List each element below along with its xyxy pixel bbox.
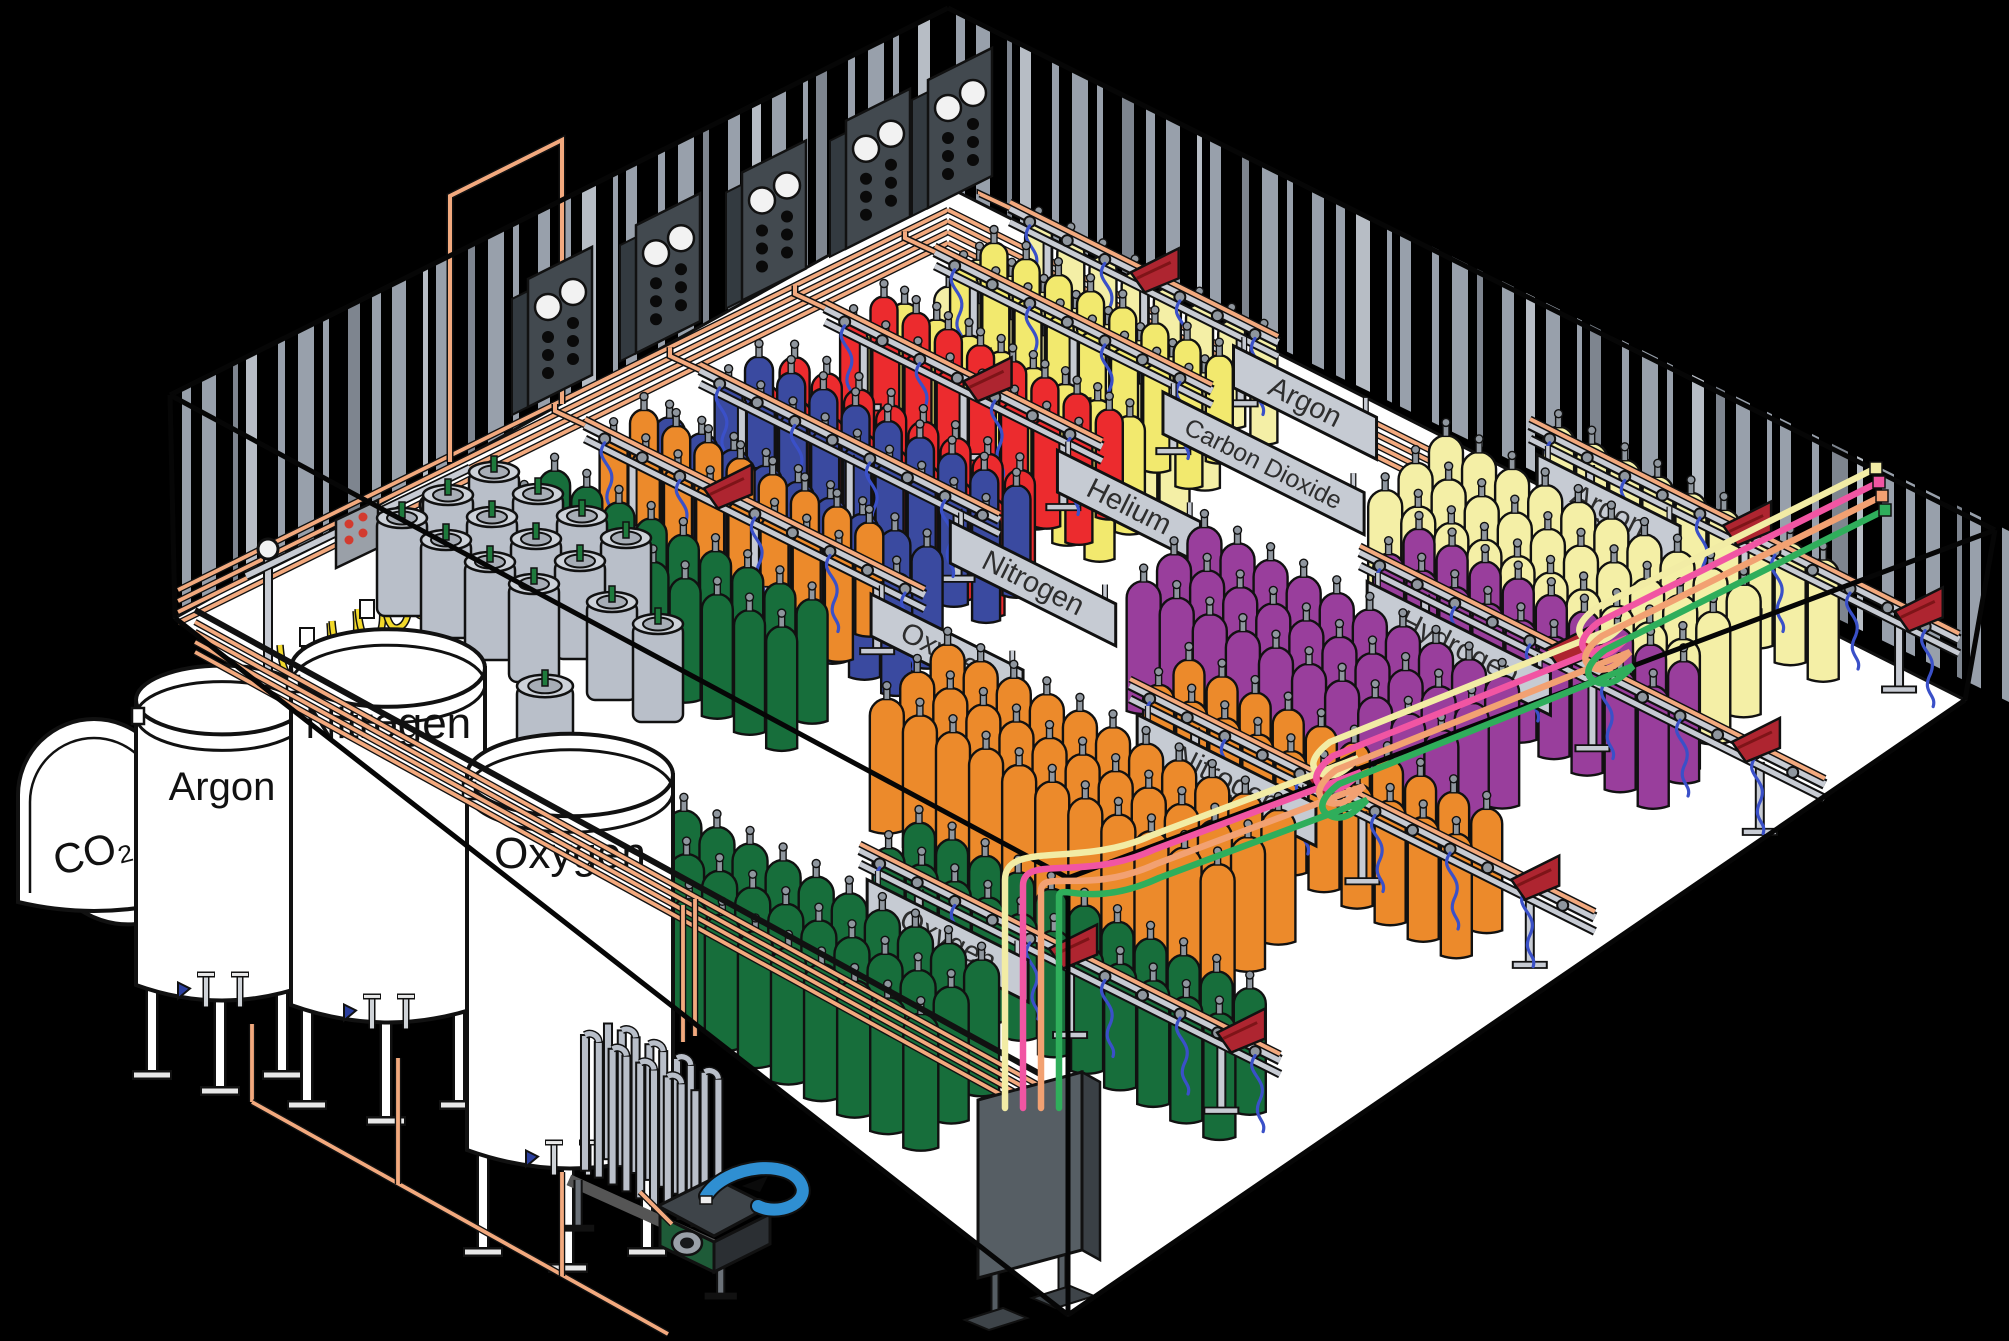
manifold-connection: [1412, 579, 1423, 590]
gauge-dial: [853, 136, 879, 162]
pressure-gauge: [258, 539, 278, 559]
manifold-connection: [1787, 767, 1798, 778]
manifold-connection: [1407, 825, 1418, 836]
manifold-connection: [1062, 317, 1073, 328]
gas-cylinder-filling-plant-scene: ArgonCarbon DioxideHeliumNitrogenOxygenA…: [0, 0, 2009, 1341]
gauge-dial: [560, 279, 586, 305]
gas-cylinder: [870, 699, 904, 834]
liquid-dewar: [509, 568, 559, 682]
manifold-connection: [1062, 235, 1073, 246]
dewar-valve: [489, 501, 495, 517]
gauge-dial: [643, 240, 669, 266]
manifold-connection: [1257, 750, 1268, 761]
manifold-connection: [1487, 617, 1498, 628]
dewar-valve: [487, 546, 493, 562]
gauge-dial: [878, 121, 904, 147]
gauge-dial: [935, 95, 961, 121]
manifold-connection: [987, 279, 998, 290]
manifold-connection: [902, 472, 913, 483]
dewar-valve: [533, 523, 539, 539]
storage-tank-argon: Argon: [132, 666, 308, 1091]
manifold-connection: [1882, 602, 1893, 613]
manifold-connection: [1637, 692, 1648, 703]
dewar-valve: [655, 608, 661, 624]
manifold-connection: [987, 915, 998, 926]
dewar-valve: [579, 500, 585, 516]
gas-cylinder: [797, 599, 828, 724]
manifold-connection: [1027, 410, 1038, 421]
gas-cylinder: [734, 610, 765, 735]
manifold-connection: [827, 435, 838, 446]
manifold-connection: [787, 527, 798, 538]
manifold-connection: [877, 335, 888, 346]
dewar-valve: [542, 670, 548, 686]
manifold-connection: [637, 452, 648, 463]
gauge-dial: [960, 80, 986, 106]
manifold-connection: [1557, 900, 1568, 911]
dewar-valve: [491, 456, 497, 472]
tank-label: Argon: [169, 765, 276, 809]
manifold-connection: [752, 397, 763, 408]
manifold-connection: [1482, 862, 1493, 873]
gas-cylinder: [1231, 837, 1265, 972]
dewar-valve: [445, 479, 451, 495]
manifold-connection: [1712, 729, 1723, 740]
gas-cylinder: [1727, 584, 1761, 717]
dewar-valve: [399, 502, 405, 518]
manifold-connection: [1657, 490, 1668, 501]
manifold-connection: [1137, 990, 1148, 1001]
gauge-dial: [774, 172, 800, 198]
gauge-dial: [535, 294, 561, 320]
dewar-valve: [623, 522, 629, 538]
gas-cylinder: [702, 594, 733, 719]
manifold-connection: [1212, 310, 1223, 321]
dewar-valve: [609, 586, 615, 602]
dewar-valve: [577, 545, 583, 561]
gas-filling-plant-illustration: ArgonCarbon DioxideHeliumNitrogenOxygenA…: [0, 0, 2009, 1341]
manifold-connection: [952, 373, 963, 384]
gauge-dial: [668, 225, 694, 251]
dewar-valve: [443, 524, 449, 540]
dewar-valve: [535, 478, 541, 494]
manifold-connection: [1807, 565, 1818, 576]
gauge-dial: [749, 187, 775, 213]
manifold-connection: [977, 510, 988, 521]
manifold-connection: [862, 565, 873, 576]
liquid-dewar: [465, 546, 515, 660]
manifold-connection: [1182, 712, 1193, 723]
manifold-connection: [912, 877, 923, 888]
manifold-connection: [1137, 354, 1148, 365]
manifold-connection: [1582, 452, 1593, 463]
dewar-valve: [531, 568, 537, 584]
